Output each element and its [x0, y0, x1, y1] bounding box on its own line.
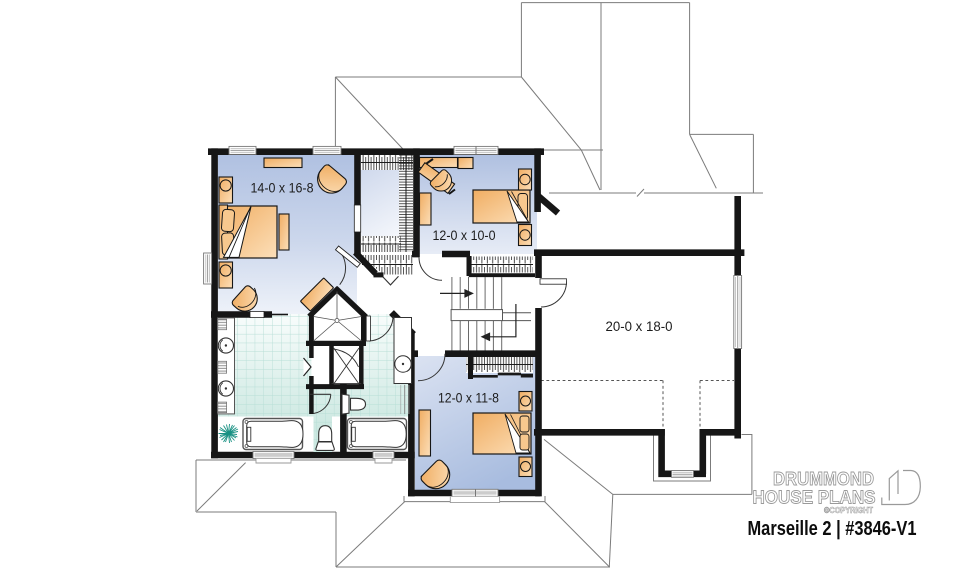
svg-text:Marseille 2 | #3846-V1: Marseille 2 | #3846-V1 [748, 518, 917, 540]
svg-text:12-0 x 11-8: 12-0 x 11-8 [438, 391, 499, 406]
svg-text:HOUSE PLANS: HOUSE PLANS [753, 487, 876, 508]
svg-text:©COPYRIGHT: ©COPYRIGHT [824, 506, 873, 515]
svg-text:14-0 x 16-8: 14-0 x 16-8 [251, 181, 314, 196]
svg-text:20-0 x 18-0: 20-0 x 18-0 [606, 319, 673, 334]
svg-text:12-0 x 10-0: 12-0 x 10-0 [433, 228, 496, 243]
